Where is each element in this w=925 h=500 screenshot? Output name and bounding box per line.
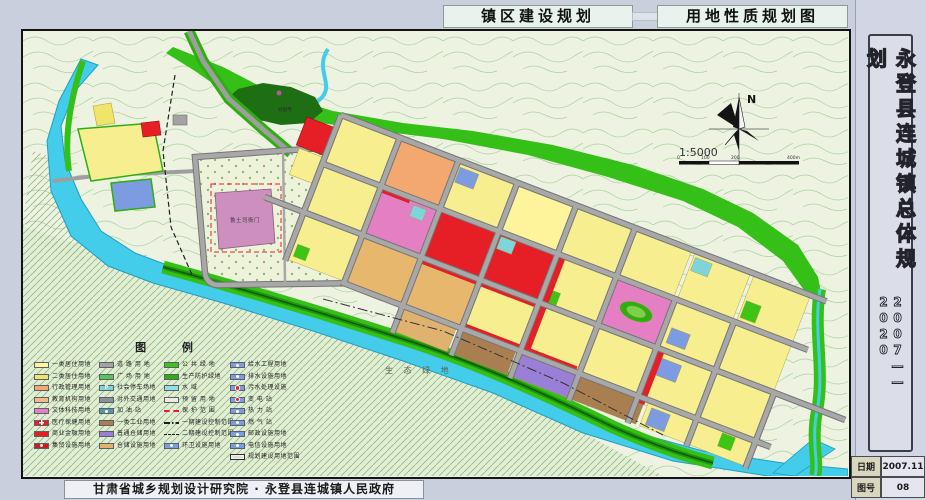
legend-swatch — [230, 397, 245, 403]
legend-swatch — [230, 454, 245, 460]
title-bar-right: 用地性质规划图 — [657, 5, 848, 28]
legend-item: 一期建设控制范围 — [164, 420, 228, 426]
legend-swatch — [34, 374, 49, 380]
legend-swatch — [99, 397, 114, 403]
legend-item-label: 污水处理设施 — [248, 385, 287, 391]
legend-item-label: 一期建设控制范围 — [182, 420, 234, 426]
dot-icon — [170, 444, 173, 447]
legend-swatch: P — [99, 385, 114, 391]
legend-swatch — [34, 408, 49, 414]
legend-item: 文体科技用地 — [34, 408, 97, 414]
legend-item: 商业金融用地 — [34, 431, 97, 437]
scale-tick: 100 — [701, 155, 710, 161]
legend-item: 行政管理用地 — [34, 385, 97, 391]
sidebar-title-vertical: 永登县连城镇总体规划 — [862, 48, 920, 290]
date-value: 2007.11 — [881, 456, 925, 477]
legend-swatch — [164, 397, 179, 403]
scale-tick: 0 — [677, 155, 680, 161]
legend-column: 道 路 用 地广 场 用 地P社会停车场地对外交通用地加 油 站一类工业用地普通… — [99, 362, 162, 466]
dot-icon — [105, 410, 108, 413]
legend-item: 变 电 站 — [230, 397, 294, 403]
dot-icon — [40, 444, 43, 447]
date-label: 日期 — [851, 456, 881, 477]
legend-swatch — [230, 431, 245, 437]
legend-item-label: 生产防护绿地 — [182, 374, 221, 380]
legend-item-label: 文体科技用地 — [52, 408, 91, 414]
legend-swatch — [230, 420, 245, 426]
dot-icon — [236, 364, 239, 367]
legend-item-label: 加 油 站 — [117, 408, 141, 414]
legend-swatch — [230, 443, 245, 449]
sheet-number-label: 图号 — [851, 477, 881, 498]
legend-item-label: 热 力 站 — [248, 408, 272, 414]
dot-icon — [235, 397, 241, 403]
legend-item: 二期建设控制范围 — [164, 431, 228, 437]
legend-item: 加 油 站 — [99, 408, 162, 414]
legend-item: 预 留 用 地 — [164, 397, 228, 403]
legend-title: 图 例 — [34, 339, 294, 355]
scale-text: 1:5000 — [679, 146, 718, 159]
legend-item-label: 商业金融用地 — [52, 431, 91, 437]
legend-swatch — [34, 362, 49, 368]
sheet-number-value: 08 — [881, 477, 925, 498]
legend-swatch — [164, 385, 179, 391]
scale-tick: 200 — [731, 155, 740, 161]
title-bar-connector — [632, 12, 658, 21]
legend-item: 公 共 绿 地 — [164, 362, 228, 368]
legend-item: 环卫设施用地 — [164, 443, 228, 449]
legend-item: 医疗保健用地 — [34, 420, 97, 426]
legend-swatch — [99, 408, 114, 414]
dot-icon — [236, 421, 239, 424]
scale-tick: 400m — [787, 155, 800, 161]
historic-site-label: 鲁土司衙门 — [230, 216, 260, 224]
sidebar-panel: 永登县连城镇总体规划 2007——2020 — [855, 0, 925, 500]
legend-swatch — [230, 385, 245, 391]
legend-item-label: 道 路 用 地 — [117, 362, 150, 368]
legend-swatch — [34, 397, 49, 403]
plan-sheet: 镇区建设规划 用地性质规划图 — [0, 0, 925, 500]
legend-item: 污水处理设施 — [230, 385, 294, 391]
legend-swatch — [164, 410, 179, 412]
legend-swatch — [34, 385, 49, 391]
temple-label: 妙因寺 — [278, 106, 292, 113]
legend-item-label: 公 共 绿 地 — [182, 362, 215, 368]
legend-item-label: 变 电 站 — [248, 397, 272, 403]
legend-item: 给水工程用地 — [230, 362, 294, 368]
legend-item: 仓储设施用地 — [99, 443, 162, 449]
legend-item: 规划建设用地范围 — [230, 454, 294, 460]
legend-item: 排水设施用地 — [230, 374, 294, 380]
legend-item: 燃 气 站 — [230, 420, 294, 426]
dot-icon — [236, 375, 239, 378]
legend-item-label: 对外交通用地 — [117, 397, 156, 403]
legend-swatch — [164, 374, 179, 380]
legend-swatch — [164, 362, 179, 368]
legend-item-label: 一类居住用地 — [52, 362, 91, 368]
legend-item: P社会停车场地 — [99, 385, 162, 391]
legend-swatch — [34, 431, 49, 437]
legend-item-label: 环卫设施用地 — [182, 443, 221, 449]
legend-swatch — [164, 422, 179, 424]
legend-item: 一类工业用地 — [99, 420, 162, 426]
legend-item-label: 集贸设施用地 — [52, 443, 91, 449]
legend-item: 热 力 站 — [230, 408, 294, 414]
legend-item-label: 仓储设施用地 — [117, 443, 156, 449]
legend-column: 给水工程用地排水设施用地污水处理设施变 电 站热 力 站燃 气 站邮政设施用地电… — [230, 362, 294, 466]
legend-swatch — [99, 374, 114, 380]
legend-item: 广 场 用 地 — [99, 374, 162, 380]
legend-swatch — [99, 362, 114, 368]
legend-swatch — [230, 362, 245, 368]
legend-panel: 图 例 一类居住用地二类居住用地行政管理用地教育机构用地文体科技用地医疗保健用地… — [34, 339, 294, 466]
info-table: 日期 2007.11 图号 08 — [851, 456, 925, 498]
legend-item: 教育机构用地 — [34, 397, 97, 403]
legend-item: 对外交通用地 — [99, 397, 162, 403]
legend-item-label: 普通仓储用地 — [117, 431, 156, 437]
legend-columns: 一类居住用地二类居住用地行政管理用地教育机构用地文体科技用地医疗保健用地商业金融… — [34, 362, 294, 466]
legend-item-label: 电信设施用地 — [248, 443, 287, 449]
legend-item: 普通仓储用地 — [99, 431, 162, 437]
sidebar-title-box: 永登县连城镇总体规划 2007——2020 — [868, 34, 913, 452]
legend-item: 水 域 — [164, 385, 228, 391]
legend-swatch — [34, 420, 49, 426]
legend-swatch — [99, 420, 114, 426]
legend-swatch — [99, 431, 114, 437]
parking-icon: P — [105, 386, 109, 391]
legend-swatch — [164, 443, 179, 449]
legend-item-label: 广 场 用 地 — [117, 374, 150, 380]
title-bar-left: 镇区建设规划 — [443, 5, 633, 28]
legend-item: 邮政设施用地 — [230, 431, 294, 437]
legend-item-label: 燃 气 站 — [248, 420, 272, 426]
legend-item-label: 教育机构用地 — [52, 397, 91, 403]
legend-item: 保 护 范 围 — [164, 408, 228, 414]
legend-swatch — [34, 443, 49, 449]
legend-column: 一类居住用地二类居住用地行政管理用地教育机构用地文体科技用地医疗保健用地商业金融… — [34, 362, 97, 466]
legend-item-label: 保 护 范 围 — [182, 408, 215, 414]
legend-item: 生产防护绿地 — [164, 374, 228, 380]
legend-item-label: 邮政设施用地 — [248, 431, 287, 437]
legend-swatch — [99, 443, 114, 449]
legend-item-label: 预 留 用 地 — [182, 397, 215, 403]
legend-item-label: 规划建设用地范围 — [248, 454, 300, 460]
legend-column: 公 共 绿 地生产防护绿地水 域预 留 用 地保 护 范 围一期建设控制范围二期… — [164, 362, 228, 466]
legend-item-label: 社会停车场地 — [117, 385, 156, 391]
legend-item-label: 排水设施用地 — [248, 374, 287, 380]
legend-item-label: 医疗保健用地 — [52, 420, 91, 426]
north-label: N — [747, 93, 756, 106]
legend-item: 电信设施用地 — [230, 443, 294, 449]
legend-item-label: 二类居住用地 — [52, 374, 91, 380]
legend-item: 二类居住用地 — [34, 374, 97, 380]
sidebar-years: 2007——2020 — [877, 295, 905, 450]
legend-item-label: 给水工程用地 — [248, 362, 287, 368]
legend-item: 集贸设施用地 — [34, 443, 97, 449]
credit-bar: 甘肃省城乡规划设计研究院 · 永登县连城镇人民政府 — [64, 480, 424, 499]
dot-icon — [236, 444, 239, 447]
temple-marker — [277, 91, 282, 96]
legend-swatch — [230, 408, 245, 414]
legend-item-label: 水 域 — [182, 385, 197, 391]
dot-icon — [235, 385, 241, 391]
dot-icon — [236, 410, 239, 413]
legend-swatch — [164, 434, 179, 435]
legend-item: 道 路 用 地 — [99, 362, 162, 368]
legend-item-label: 二期建设控制范围 — [182, 431, 234, 437]
eco-green-label: 生 态 绿 地 — [385, 365, 453, 375]
legend-swatch — [230, 374, 245, 380]
legend-item-label: 一类工业用地 — [117, 420, 156, 426]
legend-item-label: 行政管理用地 — [52, 385, 91, 391]
legend-item: 一类居住用地 — [34, 362, 97, 368]
dot-icon — [236, 433, 239, 436]
medical-cross-icon — [39, 420, 44, 425]
